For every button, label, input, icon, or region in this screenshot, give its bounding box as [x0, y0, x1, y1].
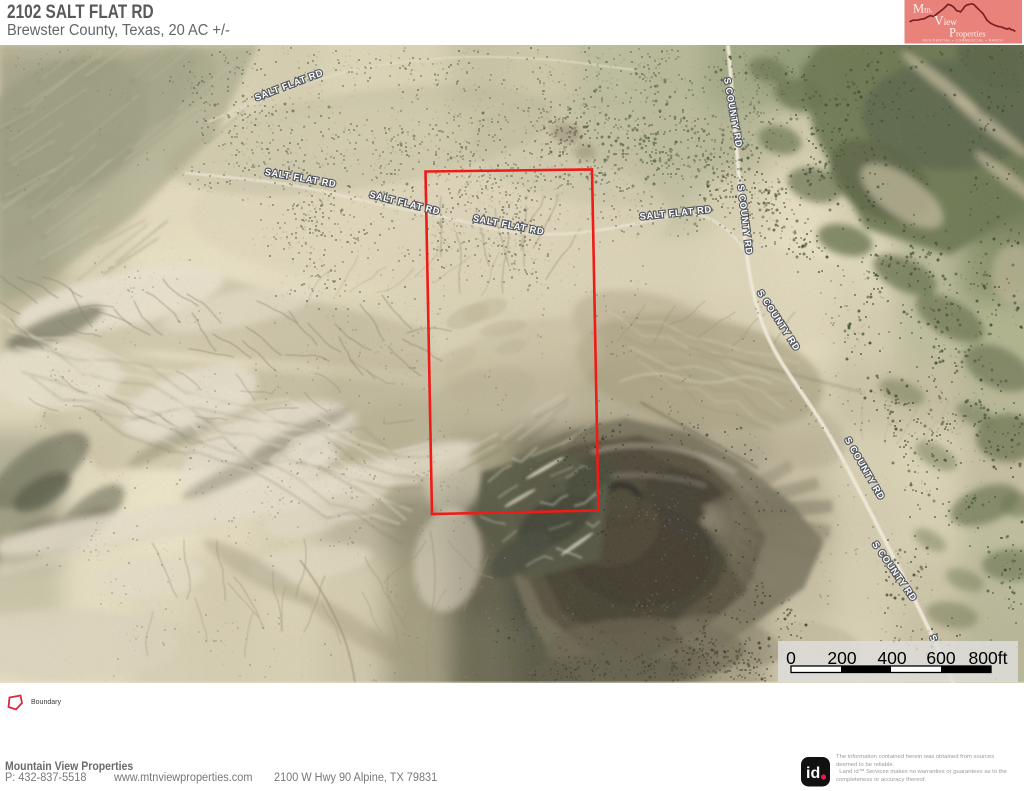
svg-text:800ft: 800ft [969, 648, 1008, 668]
svg-text:200: 200 [827, 648, 856, 668]
svg-text:0: 0 [786, 648, 796, 668]
svg-text:600: 600 [926, 648, 955, 668]
svg-text:RESIDENTIAL • COMMERCIAL • RAN: RESIDENTIAL • COMMERCIAL • RANCH [923, 38, 1004, 42]
svg-text:Mtn.: Mtn. [913, 2, 933, 16]
svg-text:400: 400 [877, 648, 906, 668]
svg-text:id: id [806, 765, 820, 782]
